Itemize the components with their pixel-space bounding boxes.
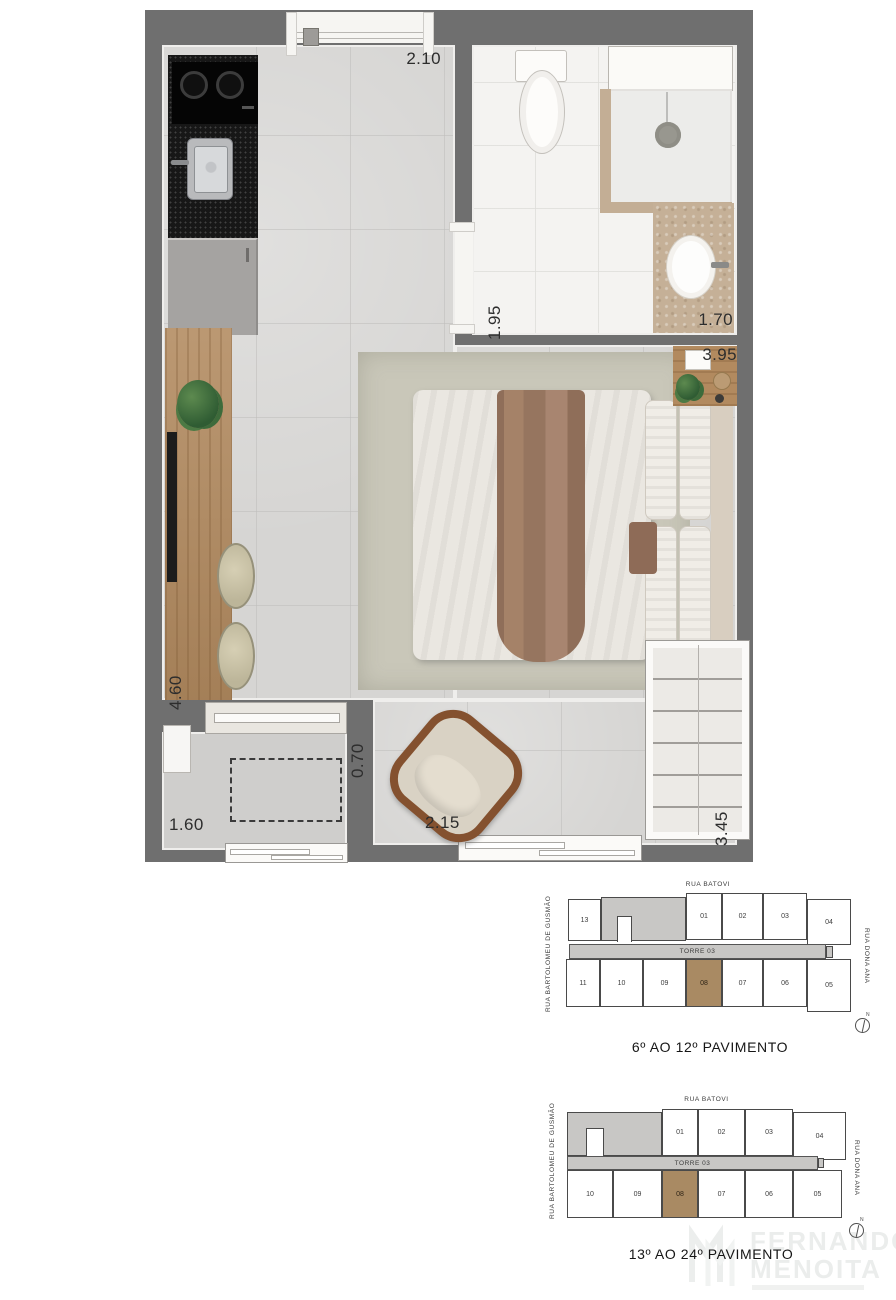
compass-north-label: N xyxy=(860,1217,864,1223)
dim-desk-length: 4.60 xyxy=(167,660,184,710)
kitchen-faucet xyxy=(171,160,189,165)
dim-top-width: 2.10 xyxy=(395,50,441,67)
unit-cell: 07 xyxy=(698,1170,745,1218)
unit-cell-highlighted: 08 xyxy=(686,959,722,1007)
unit-cell: 06 xyxy=(745,1170,793,1218)
dim-bedroom-width: 3.95 xyxy=(695,346,737,363)
unit-cell: 07 xyxy=(722,959,763,1007)
street-label-left: RUA BARTOLOMEU DE GUSMÃO xyxy=(549,1111,556,1219)
bathroom-door-opening xyxy=(455,230,473,328)
bed-pillow xyxy=(679,526,711,652)
shower-drain xyxy=(655,122,681,148)
street-label-top: RUA BATOVI xyxy=(567,1096,846,1103)
desk-plant xyxy=(177,380,219,428)
unit-cell: 02 xyxy=(698,1109,745,1156)
kitchen-cabinet xyxy=(168,238,258,335)
tower-bar-tab xyxy=(826,946,833,958)
balcony-cabinet xyxy=(163,725,191,773)
unit-cell: 09 xyxy=(613,1170,662,1218)
dim-bath-depth: 1.95 xyxy=(486,290,503,340)
unit-cell: 05 xyxy=(793,1170,842,1218)
bed-pillow xyxy=(645,400,677,520)
dim-wardrobe-length: 3.45 xyxy=(713,796,730,846)
bed-throw-blanket xyxy=(497,390,585,662)
keyplan-6-12: RUA BATOVI RUA BARTOLOMEU DE GUSMÃO RUA … xyxy=(545,878,890,1058)
bed-headboard xyxy=(711,396,733,654)
door-jamb xyxy=(449,222,475,232)
keyplan-caption: 13º AO 24º PAVIMENTO xyxy=(550,1246,872,1262)
tower-bar: TORRE 03 xyxy=(569,944,826,959)
unit-cell: 04 xyxy=(807,899,851,945)
keyplan-core-notch xyxy=(617,916,632,942)
tv xyxy=(167,432,177,582)
toilet xyxy=(519,70,565,154)
shower-curb xyxy=(600,89,611,213)
compass-north-label: N xyxy=(866,1012,870,1018)
unit-cell: 02 xyxy=(722,893,763,940)
bed-pillow xyxy=(679,400,711,520)
unit-cell: 03 xyxy=(763,893,807,940)
entry-door-leaf xyxy=(303,28,319,46)
balcony-window xyxy=(225,843,348,863)
condenser-dashed-area xyxy=(230,758,342,822)
nightstand-plant xyxy=(676,374,700,400)
unit-cell: 05 xyxy=(807,959,851,1012)
apartment-floor-plan: 2.10 1.95 1.70 3.95 4.60 1.60 0.70 2.15 … xyxy=(145,10,753,862)
dim-balcony-width: 1.60 xyxy=(169,816,204,833)
unit-cell: 10 xyxy=(567,1170,613,1218)
unit-cell: 03 xyxy=(745,1109,793,1156)
cooktop xyxy=(172,62,258,124)
tower-bar-tab xyxy=(818,1158,824,1168)
unit-cell: 10 xyxy=(600,959,643,1007)
north-compass-icon: N xyxy=(849,1223,864,1238)
desk-chair xyxy=(217,543,255,609)
nightstand-basket xyxy=(713,372,731,390)
bathroom-faucet xyxy=(711,262,729,268)
keyplan-13-24: RUA BATOVI RUA BARTOLOMEU DE GUSMÃO RUA … xyxy=(550,1095,895,1270)
street-label-top: RUA BATOVI xyxy=(565,881,851,888)
unit-cell: 01 xyxy=(686,893,722,940)
wardrobe xyxy=(645,640,750,840)
street-label-right: RUA DONA ANA xyxy=(863,928,870,988)
keyplan-core-notch xyxy=(586,1128,604,1156)
bathroom-sink xyxy=(666,235,716,299)
dim-window-width: 2.15 xyxy=(425,814,460,831)
dim-balcony-depth: 0.70 xyxy=(349,728,366,778)
unit-cell: 06 xyxy=(763,959,807,1007)
entry-door-frame xyxy=(286,12,297,56)
bathroom-shelf xyxy=(608,46,733,91)
nightstand-candle xyxy=(715,394,724,403)
street-label-left: RUA BARTOLOMEU DE GUSMÃO xyxy=(545,900,552,1012)
door-jamb xyxy=(449,324,475,334)
desk-chair xyxy=(217,622,255,690)
north-compass-icon: N xyxy=(855,1018,870,1033)
tower-bar: TORRE 03 xyxy=(567,1156,818,1170)
unit-cell: 13 xyxy=(568,899,601,941)
balcony-sill xyxy=(205,702,347,734)
floor-plan-page: 2.10 1.95 1.70 3.95 4.60 1.60 0.70 2.15 … xyxy=(0,0,896,1300)
unit-cell-highlighted: 08 xyxy=(662,1170,698,1218)
unit-cell: 04 xyxy=(793,1112,846,1160)
unit-cell: 01 xyxy=(662,1109,698,1156)
kitchen-sink xyxy=(187,138,233,200)
unit-cell: 09 xyxy=(643,959,686,1007)
bed-cushion xyxy=(629,522,657,574)
unit-cell: 11 xyxy=(566,959,600,1007)
dim-bath-width: 1.70 xyxy=(693,311,733,328)
keyplan-caption: 6º AO 12º PAVIMENTO xyxy=(545,1039,875,1055)
keyplan-core-block xyxy=(601,897,686,941)
street-label-right: RUA DONA ANA xyxy=(853,1140,860,1200)
keyplan-core-block xyxy=(567,1112,662,1156)
watermark-tagline xyxy=(752,1285,864,1290)
bedroom-window xyxy=(458,835,642,861)
